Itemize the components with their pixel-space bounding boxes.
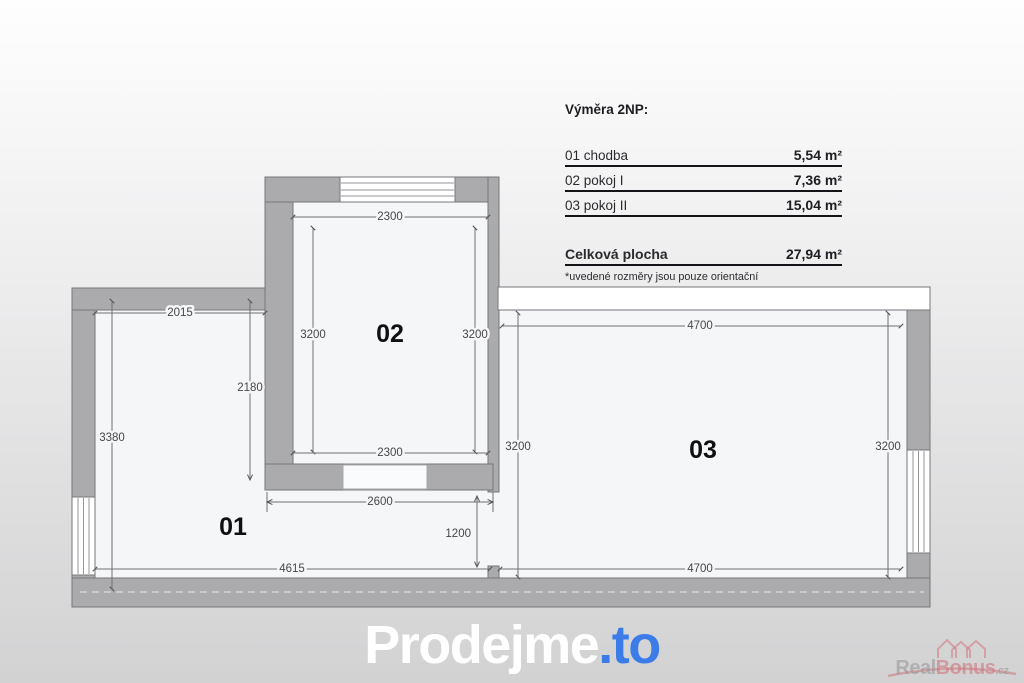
window xyxy=(340,177,455,202)
legend-row: 02 pokoj I 7,36 m² xyxy=(565,172,842,192)
floor-plan: 2015 3380 2180 4615 2300 3200 3200 2300 … xyxy=(0,0,1024,683)
room-label-01: 01 xyxy=(219,513,247,541)
legend-note: *uvedené rozměry jsou pouze orientační xyxy=(565,271,842,283)
watermark-real: Real xyxy=(895,657,935,679)
legend-total-value: 27,94 m² xyxy=(786,246,842,262)
brand-logo: Prodejme.to xyxy=(0,616,1024,674)
dim-label: 2180 xyxy=(237,382,263,394)
window xyxy=(72,497,95,575)
legend-total-row: Celková plocha 27,94 m² xyxy=(565,246,842,266)
legend-row: 01 chodba 5,54 m² xyxy=(565,147,842,167)
watermark-bonus: Bonus xyxy=(936,657,996,679)
window xyxy=(907,450,930,553)
dim-label: 1200 xyxy=(445,528,471,540)
area-legend: Výměra 2NP: 01 chodba 5,54 m² 02 pokoj I… xyxy=(565,102,842,283)
room-label-02: 02 xyxy=(376,320,404,348)
room-label-03: 03 xyxy=(689,436,717,464)
page: 2015 3380 2180 4615 2300 3200 3200 2300 … xyxy=(0,0,1024,683)
wall xyxy=(488,566,499,578)
dim-label: 3200 xyxy=(300,329,326,341)
wall xyxy=(265,177,293,490)
door-opening xyxy=(343,465,427,489)
dim-label: 2600 xyxy=(367,496,393,508)
legend-total-label: Celková plocha xyxy=(565,246,668,262)
legend-row-value: 5,54 m² xyxy=(794,147,842,163)
watermark-text: RealBonus.cz xyxy=(884,657,1020,680)
wall xyxy=(265,177,340,202)
legend-row-label: 02 pokoj I xyxy=(565,173,624,188)
dim-label: 3380 xyxy=(99,432,125,444)
wall xyxy=(907,310,930,450)
dim-label: 2300 xyxy=(377,211,403,223)
dim-label: 4700 xyxy=(687,320,713,332)
dim-label: 3200 xyxy=(462,329,488,341)
dim-label: 4615 xyxy=(279,563,305,575)
legend-row-value: 7,36 m² xyxy=(794,172,842,188)
dim-label: 4700 xyxy=(687,563,713,575)
wall xyxy=(498,287,930,310)
legend-row-label: 03 pokoj II xyxy=(565,198,627,213)
legend-row-value: 15,04 m² xyxy=(786,197,842,213)
watermark-cz: .cz xyxy=(995,665,1008,677)
wall xyxy=(427,464,493,490)
dim-label: 3200 xyxy=(875,441,901,453)
brand-logo-text: Prodejme xyxy=(364,615,598,675)
wall xyxy=(265,464,343,490)
wall xyxy=(907,553,930,578)
legend-row-label: 01 chodba xyxy=(565,148,628,163)
dim-label: 2300 xyxy=(377,447,403,459)
wall xyxy=(488,177,499,492)
realbonus-watermark: RealBonus.cz xyxy=(884,636,1020,682)
legend-title: Výměra 2NP: xyxy=(565,102,842,117)
dim-label: 2015 xyxy=(167,307,193,319)
dim-label: 3200 xyxy=(505,441,531,453)
legend-row: 03 pokoj II 15,04 m² xyxy=(565,197,842,217)
brand-logo-suffix: .to xyxy=(598,615,659,675)
